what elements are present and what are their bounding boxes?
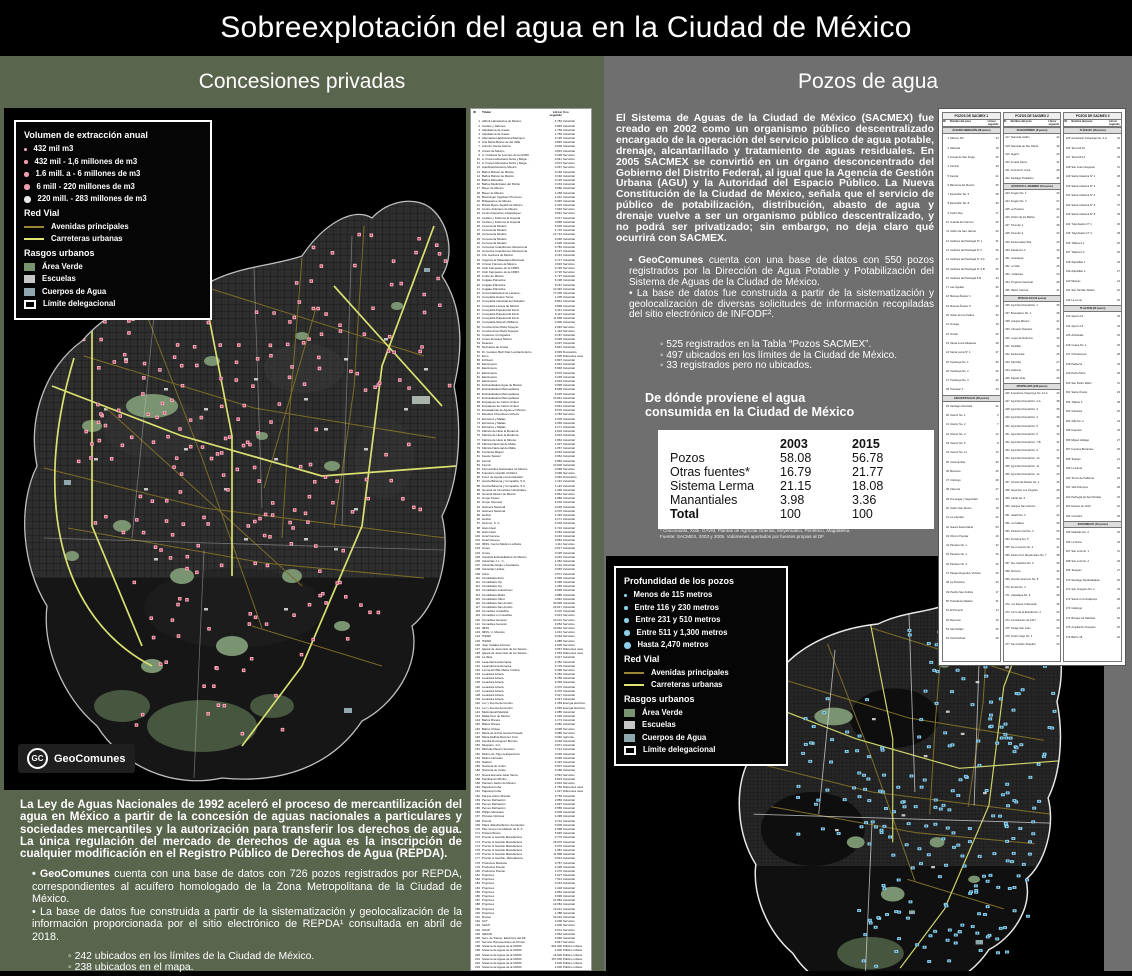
table-row: 438Zapotitlán 129	[1064, 258, 1121, 268]
row-id: 217	[1004, 134, 1011, 142]
row-pozo: Santa Anita	[1011, 351, 1049, 359]
row-litros: 25	[988, 467, 1000, 476]
row-litros: 29	[1048, 617, 1060, 625]
table-row: 264Purísima No. 530	[1004, 536, 1061, 544]
row-id: 266	[1004, 552, 1011, 560]
row-litros: 26	[1109, 493, 1121, 503]
row-pozo: Ocotal	[950, 330, 988, 339]
table-row: 433Santa Catarina N° 839	[1064, 210, 1121, 220]
table-row: 49Pueblo San Andrés17	[943, 588, 1000, 597]
row-litros: 27	[988, 255, 1000, 264]
row-id: 39	[943, 495, 950, 504]
table-row: 269Vicente Guerrero No. 832	[1004, 576, 1061, 584]
title-bar: Sobreexplotación del agua en la Ciudad d…	[0, 0, 1132, 56]
row-pozo: Agrícola Oriental No. 5	[1011, 423, 1049, 431]
legend-label: Área Verde	[642, 707, 683, 720]
value-2015: 18.08	[852, 479, 924, 493]
table-row: 1Alfonso XIII24	[943, 134, 1000, 143]
row-pozo: Tepepan	[1071, 566, 1109, 576]
row-id: 27	[943, 376, 950, 385]
table-row: 440Mixquic24	[1064, 277, 1121, 287]
table-row: 233Lindavista23	[1004, 271, 1061, 279]
table-row: 242Santa Anita25	[1004, 351, 1061, 359]
row-pozo: San Rafael	[950, 625, 988, 634]
legend-item: Avenidas principales	[624, 667, 778, 680]
table-row: 13Jardines del Pedregal N° 229	[943, 246, 1000, 255]
row-pozo: Torres de Padierna	[1071, 474, 1109, 484]
row-pozo: Central de Abasto No. 2	[1011, 479, 1049, 487]
table-row: 427Tecomitl 1233	[1064, 153, 1121, 163]
row-litros: 42	[1109, 134, 1121, 144]
row-litros: 20	[1109, 296, 1121, 306]
row-pozo: Miguel Hidalgo	[1071, 436, 1109, 446]
row-litros: 26	[1048, 326, 1060, 334]
row-pozo: Zacatenco 2	[1011, 247, 1049, 255]
delegacion-section-header: TLALPAN (22 pozos)	[1064, 305, 1121, 312]
row-id: 233	[1004, 271, 1011, 279]
row-litros: 22	[988, 376, 1000, 385]
row-id: 221	[1004, 167, 1011, 175]
table-row: 473Caltongo24	[1064, 604, 1121, 614]
table-row: 274Constitución de 191729	[1004, 617, 1061, 625]
row-litros: 20	[988, 330, 1000, 339]
row-pozo: Alfonso XIII	[950, 134, 988, 143]
row-id: 15	[943, 265, 950, 274]
row-litros: 28	[988, 339, 1000, 348]
table-row: 434Tulyehualco N° 130	[1064, 220, 1121, 230]
row-id: 44	[943, 541, 950, 550]
legend-label: Límite delegacional	[43, 298, 115, 311]
row-id: 464	[1064, 512, 1071, 522]
value-2003: 3.98	[780, 493, 852, 507]
row-pozo: Omega	[950, 320, 988, 329]
row-pozo: Cuicuilco	[1071, 512, 1109, 522]
row-id: 251	[1004, 431, 1011, 439]
row-id: 432	[1064, 201, 1071, 211]
table-row: 4Central33	[943, 162, 1000, 171]
col-nombre: Nombre del pozo	[1071, 120, 1109, 126]
row-litros: 28	[1109, 229, 1121, 239]
legend-label: 220 mill. - 283 millones de m3	[38, 193, 147, 206]
table-row: 51El Porvenir14	[943, 606, 1000, 615]
row-pozo: Nativitas No. 2	[1071, 528, 1109, 538]
row-id: 467	[1064, 547, 1071, 557]
row-litros: 9	[988, 411, 1000, 420]
table-row: 224Aragón No. 327	[1004, 198, 1061, 206]
row-litros: 21	[988, 402, 1000, 411]
row-id: 17	[943, 283, 950, 292]
row-id: 223	[1004, 190, 1011, 198]
table-row: 10Guarda del Carmen26	[943, 218, 1000, 227]
row-pozo: Amado Nervo	[1011, 159, 1049, 167]
row-pozo: Xitle No. 2	[1071, 417, 1109, 427]
legend-well-depth: Profundidad de los pozos Menos de 115 me…	[614, 566, 788, 766]
row-id: 10	[943, 218, 950, 227]
row-pozo: Barrio 18	[1071, 633, 1109, 643]
row-id: 265	[1004, 544, 1011, 552]
row-litros: 31	[1109, 547, 1121, 557]
avenue-line-icon	[24, 226, 44, 228]
row-litros: 12	[988, 430, 1000, 439]
row-pozo: Tulyehualco N° 4	[1071, 229, 1109, 239]
row-litros: 24	[1109, 604, 1121, 614]
row-id: 447	[1064, 350, 1071, 360]
table-row: 17Las Águilas36	[943, 283, 1000, 292]
table-row: 455Huipulco33	[1064, 426, 1121, 436]
row-id: 254	[1004, 455, 1011, 463]
row-id: 258	[1004, 487, 1011, 495]
delegacion-section-header: CUAUHTÉMOC (6 pozos)	[1004, 127, 1061, 134]
legend-label: Hasta 2,470 metros	[638, 639, 709, 652]
row-id: 241	[1004, 343, 1011, 351]
table-row: 256Agrícola Oriental No. 1229	[1004, 471, 1061, 479]
delegacion-section-header: ÁLVARO OBREGÓN (28 pozos)	[943, 127, 1000, 134]
row-id: 261	[1004, 512, 1011, 520]
table-row: 263Panteón Civil No. 325	[1004, 528, 1061, 536]
row-pozo: Agrícola Oriental No. 9	[1011, 447, 1049, 455]
table-row: 470Santiago Tepalcatlalpan25	[1064, 576, 1121, 586]
row-pozo: Cerro de la Estrella No. 2	[1011, 609, 1049, 617]
row-id: 433	[1064, 210, 1071, 220]
sacmex-table: POZOS DE SACMEX 3IDNombre del pozoLitros…	[1063, 112, 1122, 662]
row-pozo: Jardines del Pedregal 5-B	[950, 274, 988, 283]
sacmex-table-header: IDNombre del pozoLitros/ segundo	[1064, 120, 1121, 127]
row-litros: 28	[1109, 595, 1121, 605]
legend-item: Límite delegacional	[24, 298, 202, 311]
table-row: 229Santa Isabel Tola29	[1004, 239, 1061, 247]
row-pozo: Alameda de Sta. María	[1011, 143, 1049, 151]
table-row: 432Santa Catarina N° 637	[1064, 201, 1121, 211]
table-row: 50Presidente Madero31	[943, 597, 1000, 606]
row-litros: 22	[988, 513, 1000, 522]
row-id: 28	[943, 385, 950, 394]
depth-dot-icon	[624, 618, 629, 623]
row-litros: 43	[1109, 322, 1121, 332]
row-id: 246	[1004, 390, 1011, 398]
delegacion-section-header: IZTAPALAPA (136 pozos)	[1004, 383, 1061, 390]
row-id: 248	[1004, 406, 1011, 414]
table-row: 250Agrícola Oriental No. 534	[1004, 423, 1061, 431]
row-pozo: Tlacopac 1	[950, 385, 988, 394]
row-litros: 30	[1048, 641, 1060, 649]
row-litros: 29	[1048, 471, 1060, 479]
table-row: 258Deportivo Los Ángeles28	[1004, 487, 1061, 495]
row-litros: 28	[988, 634, 1000, 643]
legend-item: Cuerpos de Agua	[24, 286, 202, 299]
legend-label: Cuerpos de Agua	[42, 286, 106, 299]
row-id: 3	[943, 153, 950, 162]
legend-item: Área Verde	[624, 707, 778, 720]
row-id: 50	[943, 597, 950, 606]
row-litros: 29	[1109, 557, 1121, 567]
legend-label: Avenidas principales	[51, 221, 129, 234]
table-row: 458Topilejo21	[1064, 455, 1121, 465]
sub-bullet: ◦ 33 registrados pero no ubicados.	[660, 361, 930, 372]
table-row: 15Jardines del Pedregal N° 4-B25	[943, 265, 1000, 274]
legend-label: 432 mil - 1,6 millones de m3	[35, 156, 138, 169]
row-pozo: Topilejo	[1071, 455, 1109, 465]
row-pozo: Pantaco No. 1	[950, 541, 988, 550]
row-id: 244	[1004, 367, 1011, 375]
legend-item: Carreteras urbanas	[24, 233, 202, 246]
row-litros: 33	[1109, 426, 1121, 436]
col-nombre: Nombre del pozo	[1011, 120, 1049, 126]
row-id: 237	[1004, 310, 1011, 318]
row-id: 220	[1004, 159, 1011, 167]
row-id: 30	[943, 411, 950, 420]
legend-title: Profundidad de los pozos	[624, 576, 778, 586]
row-id: 473	[1064, 604, 1071, 614]
row-pozo: Cedro Rey	[950, 209, 988, 218]
footnote-line2: Fuente: SACMEX, 2003 y 2005. Volúmenes a…	[660, 534, 936, 540]
table-row: 3Arenal de San Ángel40	[943, 153, 1000, 162]
volume-dot-icon	[24, 172, 29, 177]
row-litros: 16	[988, 616, 1000, 625]
row-litros: 32	[1109, 331, 1121, 341]
row-pozo: Bosque de Nativitas	[1071, 614, 1109, 624]
row-pozo: Acueducto Xotepingo No. 14-A	[1011, 390, 1049, 398]
row-id: 273	[1004, 609, 1011, 617]
row-id: 35	[943, 458, 950, 467]
table-row: 474Bosque de Nativitas30	[1064, 614, 1121, 624]
row-id: 42	[943, 523, 950, 532]
table-row: 54Xochinahuac28	[943, 634, 1000, 643]
row-pozo: Ampliación Tepepan	[1071, 623, 1109, 633]
col-2003: 2003	[780, 437, 852, 451]
table-row: 16Jardines del Pedregal 5-B24	[943, 274, 1000, 283]
row-litros: 25	[1109, 445, 1121, 455]
bullet-bold: • GeoComunes	[32, 868, 110, 880]
row-id: 235	[1004, 287, 1011, 295]
row-litros: 29	[1048, 239, 1060, 247]
table-row: 22Ocotal20	[943, 330, 1000, 339]
row-pozo: Obrero Popular	[950, 532, 988, 541]
boundary-swatch-icon	[624, 746, 636, 755]
row-id: 475	[1064, 623, 1071, 633]
row-id: 441	[1064, 286, 1071, 296]
row-pozo: Cosmopolita	[950, 458, 988, 467]
row-litros: 24	[988, 274, 1000, 283]
section-title: Concesiones privadas	[199, 70, 406, 94]
row-id: 252	[1004, 439, 1011, 447]
row-pozo: Tacubaya No. 3	[950, 376, 988, 385]
row-id: 227	[1004, 222, 1011, 230]
row-pozo: San Pedro Mártir	[1071, 379, 1109, 389]
row-id: 224	[1004, 198, 1011, 206]
table-row: 439Zapotitlán 227	[1064, 267, 1121, 277]
table-row: 449Peña Pobre36	[1064, 369, 1121, 379]
row-id: 449	[1064, 369, 1071, 379]
row-pozo: Agrícola Oriental No. 6	[1011, 431, 1049, 439]
table-row: 265San Lorenzo No. 241	[1004, 544, 1061, 552]
row-litros: 25	[1109, 576, 1121, 586]
row-pozo: La Villa	[1011, 263, 1049, 271]
section-title: Pozos de agua	[798, 70, 938, 94]
sacmex-table-title: POZOS DE SACMEX 1	[943, 113, 1000, 120]
row-id: 451	[1064, 388, 1071, 398]
row-litros: 44	[1048, 134, 1060, 142]
depth-dot-icon	[624, 642, 631, 649]
table-row: 277San Andrés Tetepilco30	[1004, 641, 1061, 649]
row-pozo: Manuel Álvarez 5	[950, 302, 988, 311]
delegacion-section-header: IZTACALCO (10 pozos)	[1004, 295, 1061, 302]
row-pozo: Tlaltenco 2	[1071, 248, 1109, 258]
row-pozo: Zapotitlán 1	[1071, 258, 1109, 268]
row-id: 450	[1064, 379, 1071, 389]
row-id: 36	[943, 467, 950, 476]
table-footnote: * Chiconautla, Xote, GAVM, Plantas de Ag…	[660, 528, 936, 539]
row-litros: 33	[1109, 585, 1121, 595]
row-litros: 27	[1109, 436, 1121, 446]
row-litros: 36	[1048, 560, 1060, 568]
row-id: 437	[1064, 248, 1071, 258]
row-litros: 8	[988, 439, 1000, 448]
delegacion-section-header: TLÁHUAC (18 pozos)	[1064, 127, 1121, 134]
table-row: 46Pantaco No. 326	[943, 560, 1000, 569]
table-row: 24Santa Lucía N° 137	[943, 348, 1000, 357]
row-litros: 34	[1048, 568, 1060, 576]
row-litros: 31	[1048, 584, 1060, 592]
row-id: 53	[943, 625, 950, 634]
row-pozo: Santiago Tlatelolco	[1011, 175, 1049, 183]
row-id: 253	[1004, 447, 1011, 455]
legend-label: Área Verde	[42, 261, 83, 274]
logo-name: GeoComunes	[54, 753, 126, 765]
row-pozo: Peñón de los Baños	[1011, 214, 1049, 222]
row-litros: 2.000	[545, 965, 562, 969]
row-id: 442	[1064, 296, 1071, 306]
table-row: 231Cuautepec18	[1004, 255, 1061, 263]
legend-item: 432 mil - 1,6 millones de m3	[24, 156, 202, 169]
table-row: 33Interior No. 58	[943, 439, 1000, 448]
legend-label: Avenidas principales	[651, 667, 729, 680]
row-litros: 39	[1109, 210, 1121, 220]
row-litros: 25	[1048, 351, 1060, 359]
table-row: 270Ermita No. 431	[1004, 584, 1061, 592]
row-id: 2	[943, 144, 950, 153]
row-litros: 21	[988, 172, 1000, 181]
row-litros: 40	[1048, 390, 1060, 398]
row-label: Otras fuentes*	[670, 465, 780, 479]
row-pozo: Granjas San Antonio	[1011, 503, 1049, 511]
row-id: 466	[1064, 538, 1071, 548]
table-row: 266Santa Cruz Meyehualco No. 738	[1004, 552, 1061, 560]
legend-item: Escuelas	[24, 273, 202, 286]
row-id: 1	[943, 134, 950, 143]
row-pozo: Ticomán 3	[1011, 230, 1049, 238]
row-pozo: Caltongo	[1071, 604, 1109, 614]
table-row: 448Padierna34	[1064, 360, 1121, 370]
row-litros: 29	[988, 246, 1000, 255]
depth-dot-icon	[624, 606, 628, 610]
row-litros: 34	[988, 385, 1000, 394]
row-litros: 30	[1048, 463, 1060, 471]
row-litros: 35	[1048, 175, 1060, 183]
table-row: 260Granjas San Antonio27	[1004, 503, 1061, 511]
section-header-concesiones: Concesiones privadas	[0, 56, 604, 108]
table-row: 14Jardines del Pedregal N° 4-A27	[943, 255, 1000, 264]
row-pozo: La Pastora	[1011, 206, 1049, 214]
row-id: 24	[943, 348, 950, 357]
row-id: 443	[1064, 312, 1071, 322]
row-litros: 19	[988, 292, 1000, 301]
row-pozo: Fuentes Brotantes	[1071, 445, 1109, 455]
row-litros: 25	[988, 265, 1000, 274]
row-id: 448	[1064, 360, 1071, 370]
table-row: 261Health No. 224	[1004, 512, 1061, 520]
row-id: 242	[1004, 351, 1011, 359]
table-row: 453Volcanes26	[1064, 407, 1121, 417]
row-pozo: Villa Olímpica	[1071, 483, 1109, 493]
table-row: 39Pro-Hogar y Seguridad24	[943, 495, 1000, 504]
table-row: 447Chimalcoyoc28	[1064, 350, 1121, 360]
row-litros: 24	[1109, 417, 1121, 427]
row-pozo: El Porvenir	[950, 606, 988, 615]
row-litros: 36	[1109, 369, 1121, 379]
row-id: 12	[943, 237, 950, 246]
row-id: 269	[1004, 576, 1011, 584]
row-pozo: Algarín	[1011, 151, 1049, 159]
table-row: 5Favela21	[943, 172, 1000, 181]
legend-label: Entre 116 y 230 metros	[635, 602, 720, 615]
table-row: 441San Nicolás Tetelco22	[1064, 286, 1121, 296]
table-row: 43Obrero Popular19	[943, 532, 1000, 541]
row-litros: 26	[1048, 495, 1060, 503]
legend-label: Carreteras urbanas	[51, 233, 123, 246]
legend-label: Carreteras urbanas	[651, 679, 723, 692]
water-swatch-icon	[24, 288, 35, 296]
row-id: 260	[1004, 503, 1011, 511]
row-pozo: Interior No. 3	[950, 430, 988, 439]
row-pozo: Tlaltenco 1	[1071, 239, 1109, 249]
row-id: 38	[943, 485, 950, 494]
row-litros: 33	[1048, 431, 1060, 439]
row-litros: 36	[1048, 222, 1060, 230]
row-litros: 40	[988, 153, 1000, 162]
table-row: 461Villa Olímpica28	[1064, 483, 1121, 493]
row-pozo: Garita No. 6	[1011, 495, 1049, 503]
row-id: 470	[1064, 576, 1071, 586]
table-row: 268Tezonco34	[1004, 568, 1061, 576]
row-label: Pozos	[670, 451, 780, 465]
row-id: 236	[1004, 302, 1011, 310]
table-row: 31Interior No. 27	[943, 420, 1000, 429]
row-pozo: La Petrolera	[950, 578, 988, 587]
table-row: 26Tacubaya No. 226	[943, 367, 1000, 376]
row-litros: 29	[988, 550, 1000, 559]
legend-label: Menos de 115 metros	[634, 589, 713, 602]
row-id: 225	[1004, 206, 1011, 214]
table-row: 257Central de Abasto No. 245	[1004, 479, 1061, 487]
table-row: 53San Rafael25	[943, 625, 1000, 634]
value-2003: 16.79	[780, 465, 852, 479]
row-id: 29	[943, 402, 950, 411]
row-pozo: Huipulco	[1071, 426, 1109, 436]
row-litros: 14	[988, 606, 1000, 615]
row-id: 40	[943, 504, 950, 513]
row-id: 455	[1064, 426, 1071, 436]
concessions-rows: 1Abbott Laboratorios de México4.784Indus…	[473, 119, 589, 969]
table-row: 9Cedro Rey17	[943, 209, 1000, 218]
water-sources-header: 2003 2015	[670, 437, 922, 451]
table-row: 248Agrícola Oriental No. 335	[1004, 406, 1061, 414]
row-id: 247	[1004, 398, 1011, 406]
table-row: 235Martín Carrera31	[1004, 287, 1061, 295]
row-pozo: Progreso Nacional	[1011, 279, 1049, 287]
page-title: Sobreexplotación del agua en la Ciudad d…	[220, 11, 912, 45]
row-pozo: Mancera	[950, 467, 988, 476]
table-row: 475Ampliación Tepepan26	[1064, 623, 1121, 633]
